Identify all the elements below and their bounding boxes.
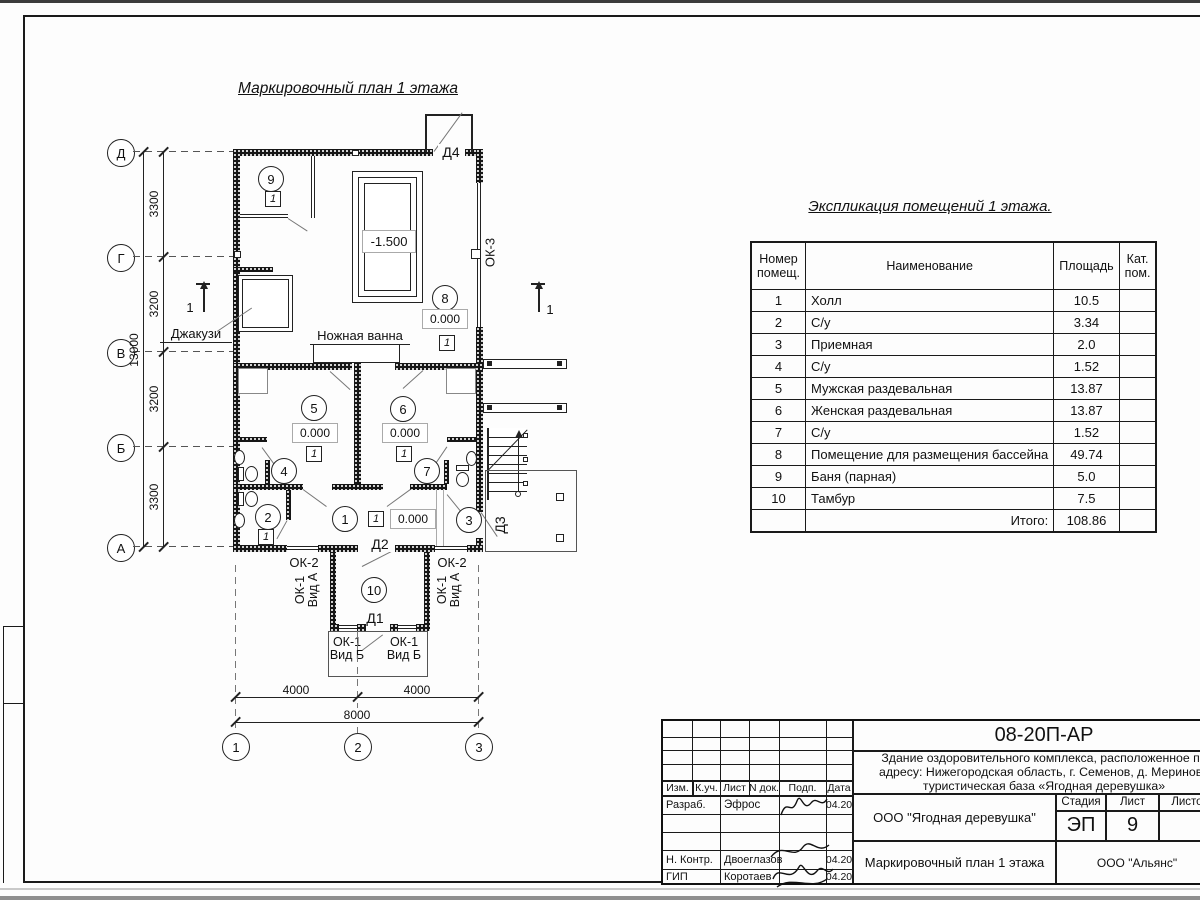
door-label-d4: Д4	[438, 144, 464, 160]
dim-value: 4000	[397, 683, 437, 697]
tb-plan-name: Маркировочный план 1 этажа	[854, 842, 1055, 883]
wall	[233, 484, 303, 490]
dim-value: 4000	[276, 683, 316, 697]
room-circle-6: 6	[390, 396, 416, 422]
section-mark-bar	[531, 283, 545, 285]
sink	[234, 450, 245, 465]
cell-num: 5	[751, 378, 806, 400]
cell-area: 5.0	[1054, 466, 1119, 488]
tb-role-razrab: Разраб.	[666, 795, 720, 814]
stairs-arrow-head	[515, 430, 523, 438]
toilet-tank	[238, 492, 244, 506]
wall	[233, 267, 273, 272]
cell-cat	[1119, 466, 1156, 488]
axis-label: А	[117, 541, 126, 556]
tb-doc-number: 08-20П-АР	[854, 721, 1200, 750]
cell-num: 7	[751, 422, 806, 444]
tb-col-kuch: К.уч.	[693, 780, 720, 795]
axis-label: Г	[117, 251, 124, 266]
ramp-rail	[483, 403, 567, 413]
col-header-num: Номер помещ.	[751, 242, 806, 290]
explication-table: Номер помещ. Наименование Площадь Кат. п…	[750, 241, 1157, 533]
jacuzzi-inner	[242, 279, 289, 328]
counter-line	[436, 490, 437, 546]
signature-razrab	[775, 789, 831, 823]
axis-line	[133, 151, 233, 152]
toilet-bowl	[245, 491, 258, 507]
signature-nkontr-gip	[763, 839, 841, 891]
room-number: 10	[367, 583, 381, 598]
door-label-d1: Д1	[361, 610, 389, 626]
room-number: 2	[264, 510, 271, 525]
window-mullion	[471, 249, 481, 259]
door-label-d2: Д2	[366, 536, 394, 552]
table-row: 1Холл10.5	[751, 290, 1156, 312]
cell-num: 4	[751, 356, 806, 378]
total-value: 108.86	[1054, 510, 1119, 533]
sink	[234, 513, 245, 528]
room-circle-4: 4	[271, 458, 297, 484]
partition	[311, 156, 315, 218]
tb-role-nkontr: Н. Контр.	[666, 850, 720, 869]
tb-name-razrab: Эфрос	[724, 795, 779, 814]
frame-margin-divider	[3, 703, 23, 704]
wall	[233, 545, 287, 552]
cell-area: 1.52	[1054, 422, 1119, 444]
room-circle-7: 7	[414, 458, 440, 484]
tb-description: Здание оздоровительного комплекса, распо…	[854, 751, 1200, 793]
col-header-area: Площадь	[1054, 242, 1119, 290]
foot-bath-label: Ножная ванна	[310, 328, 410, 345]
wall	[476, 327, 483, 512]
wall	[447, 437, 476, 442]
room-number: 6	[399, 402, 406, 417]
cell-cat	[1119, 356, 1156, 378]
rail-post	[487, 361, 492, 366]
cell-name: С/у	[806, 356, 1054, 378]
toilet-tank	[456, 465, 469, 471]
sheet-bottom-edge-dark	[0, 896, 1200, 900]
table-header-row: Номер помещ. Наименование Площадь Кат. п…	[751, 242, 1156, 290]
wall	[395, 545, 435, 552]
drawing-sheet: Маркировочный план 1 этажа Д Г В Б А 330…	[0, 0, 1200, 900]
sink	[466, 451, 477, 466]
dim-value-total: 8000	[336, 708, 378, 722]
cell-empty	[1119, 510, 1156, 533]
cell-cat	[1119, 312, 1156, 334]
cell-area: 10.5	[1054, 290, 1119, 312]
room-number: 7	[423, 464, 430, 479]
wall-tambour	[390, 624, 398, 631]
rail-post	[557, 361, 562, 366]
ramp-rail	[483, 359, 567, 369]
room-circle-9: 9	[258, 166, 284, 192]
tb-line	[663, 832, 852, 833]
window-label-ok1-vid-a: ОК-1 Вид А	[436, 567, 462, 613]
room-number: 4	[280, 464, 287, 479]
axis-line	[133, 446, 233, 447]
column-axis-line	[235, 565, 236, 733]
tb-col-izm: Изм.	[663, 780, 692, 795]
dim-value: 3300	[147, 184, 161, 224]
rail-post	[487, 405, 492, 410]
cell-name: Баня (парная)	[806, 466, 1054, 488]
wall	[444, 460, 449, 484]
wall-tambour	[416, 624, 430, 631]
cell-name: Приемная	[806, 334, 1054, 356]
window-ok2	[435, 546, 467, 550]
tb-sheet-label: Лист	[1107, 793, 1158, 810]
wall	[265, 460, 270, 484]
window-label-ok1-vid-b: ОК-1 Вид Б	[381, 636, 427, 662]
dim-value: 3200	[147, 284, 161, 324]
tb-stage-label: Стадия	[1057, 793, 1105, 810]
wall	[233, 437, 267, 442]
wall	[286, 490, 291, 520]
axis-line	[133, 351, 233, 352]
cell-area: 49.74	[1054, 444, 1119, 466]
total-label: Итого:	[806, 510, 1054, 533]
cell-cat	[1119, 334, 1156, 356]
cell-area: 1.52	[1054, 356, 1119, 378]
level-marker: 0.000	[422, 309, 468, 329]
axis-col-2: 2	[344, 733, 372, 761]
wall-tambour	[330, 624, 339, 631]
room-circle-5: 5	[301, 395, 327, 421]
cell-num: 9	[751, 466, 806, 488]
tb-sheet-value: 9	[1107, 811, 1158, 840]
cell-cat	[1119, 422, 1156, 444]
table-row: 2С/у3.34	[751, 312, 1156, 334]
axis-col-1: 1	[222, 733, 250, 761]
level-marker: 0.000	[390, 509, 436, 529]
rail-post	[557, 405, 562, 410]
window-ok1	[398, 625, 416, 629]
section-number: 1	[544, 302, 556, 317]
plan-title: Маркировочный план 1 этажа	[198, 80, 498, 98]
table-row: 10Тамбур7.5	[751, 488, 1156, 510]
cell-area: 3.34	[1054, 312, 1119, 334]
wall-fixture	[352, 150, 359, 156]
floor-type-marker: 1	[396, 446, 412, 462]
frame-margin-line	[3, 626, 4, 883]
toilet-tank	[238, 467, 244, 481]
title-block: Изм. К.уч. Лист N док. Подп. Дата Разраб…	[661, 719, 1200, 885]
section-mark-line	[203, 286, 205, 312]
room-number: 5	[310, 401, 317, 416]
axis-line	[133, 256, 233, 257]
axis-label: Б	[117, 441, 126, 456]
room-circle-1: 1	[332, 506, 358, 532]
cell-cat	[1119, 444, 1156, 466]
axis-row-G: Г	[107, 244, 135, 272]
shower-tray	[446, 368, 476, 394]
cell-area: 13.87	[1054, 400, 1119, 422]
table-row: 7С/у1.52	[751, 422, 1156, 444]
tb-company: ООО "Ягодная деревушка"	[854, 795, 1055, 840]
toilet-bowl	[245, 466, 258, 482]
dim-line-bottom-total	[235, 722, 478, 723]
dim-value-total: 13000	[127, 322, 141, 378]
cell-cat	[1119, 488, 1156, 510]
porch-post	[556, 493, 564, 501]
floor-type-marker: 1	[439, 335, 455, 351]
tb-role-gip: ГИП	[666, 869, 720, 885]
cell-num: 8	[751, 444, 806, 466]
tb-line	[720, 721, 721, 883]
porch-post	[556, 534, 564, 542]
window-ok2	[287, 546, 318, 550]
tb-line	[663, 764, 852, 765]
wall	[467, 545, 483, 552]
tb-col-list: Лист	[720, 780, 749, 795]
level-marker: 0.000	[292, 423, 338, 443]
cell-area: 2.0	[1054, 334, 1119, 356]
col-header-cat: Кат. пом.	[1119, 242, 1156, 290]
window-label-ok1-vid-a: ОК-1 Вид А	[294, 567, 320, 613]
wall	[332, 484, 383, 490]
wall	[318, 545, 358, 552]
room-number: 8	[441, 291, 448, 306]
sheet-top-edge	[0, 0, 1200, 3]
toilet-bowl	[456, 472, 469, 487]
sheet-bottom-edge-light	[0, 888, 1200, 890]
counter-line	[443, 490, 444, 546]
pool-level-marker: -1.500	[362, 230, 416, 253]
floor-type-marker: 1	[368, 511, 384, 527]
room-circle-3: 3	[456, 507, 482, 533]
table-row: 8Помещение для размещения бассейна49.74	[751, 444, 1156, 466]
level-marker: 0.000	[382, 423, 428, 443]
door-label-d3: Д3	[492, 510, 508, 540]
floor-type-marker: 1	[265, 191, 281, 207]
wall	[476, 149, 483, 183]
cell-num: 6	[751, 400, 806, 422]
explication-title: Экспликация помещений 1 этажа.	[790, 198, 1070, 215]
dim-value: 3300	[147, 477, 161, 517]
cell-num: 10	[751, 488, 806, 510]
axis-label: Д	[117, 146, 126, 161]
partition	[240, 214, 288, 218]
window-ok1	[339, 625, 357, 629]
shower-tray	[238, 368, 268, 394]
table-row: 5Мужская раздевальная13.87	[751, 378, 1156, 400]
cell-name: Мужская раздевальная	[806, 378, 1054, 400]
table-row: 9Баня (парная)5.0	[751, 466, 1156, 488]
window-label-ok1-vid-b: ОК-1 Вид Б	[324, 636, 370, 662]
floor-type-marker: 1	[306, 446, 322, 462]
railing-post	[523, 457, 528, 462]
cell-cat	[1119, 378, 1156, 400]
tb-sheets-label: Листов	[1160, 793, 1200, 810]
room-circle-2: 2	[255, 504, 281, 530]
cell-num: 3	[751, 334, 806, 356]
wall	[354, 363, 361, 490]
dim-line-total-left	[143, 152, 144, 547]
axis-col-3: 3	[465, 733, 493, 761]
floor-type-marker: 1	[258, 529, 274, 545]
wall	[233, 149, 433, 156]
wall-tambour	[330, 552, 336, 627]
axis-row-B: Б	[107, 434, 135, 462]
cell-name: Тамбур	[806, 488, 1054, 510]
cell-empty	[751, 510, 806, 533]
axis-label: В	[117, 346, 126, 361]
cell-cat	[1119, 400, 1156, 422]
axis-label: 3	[475, 740, 482, 755]
table-row: 4С/у1.52	[751, 356, 1156, 378]
section-mark-line	[538, 286, 540, 312]
railing-post	[523, 433, 528, 438]
cell-cat	[1119, 290, 1156, 312]
cell-name: Женская раздевальная	[806, 400, 1054, 422]
cell-name: Холл	[806, 290, 1054, 312]
tb-line	[663, 737, 852, 738]
tb-line	[663, 750, 852, 751]
table-total-row: Итого:108.86	[751, 510, 1156, 533]
axis-row-A: А	[107, 534, 135, 562]
axis-label: 2	[354, 740, 361, 755]
cell-area: 7.5	[1054, 488, 1119, 510]
table-row: 3Приемная2.0	[751, 334, 1156, 356]
table-row: 6Женская раздевальная13.87	[751, 400, 1156, 422]
dim-value: 3200	[147, 379, 161, 419]
room-number: 9	[267, 172, 274, 187]
room-number: 3	[465, 513, 472, 528]
cell-num: 2	[751, 312, 806, 334]
room-number: 1	[341, 512, 348, 527]
wall	[410, 484, 447, 490]
cell-name: С/у	[806, 422, 1054, 444]
cell-name: Помещение для размещения бассейна	[806, 444, 1054, 466]
column-axis-line	[478, 565, 479, 733]
cell-area: 13.87	[1054, 378, 1119, 400]
tb-contractor: ООО "Альянс"	[1057, 842, 1200, 883]
section-mark-bar	[196, 283, 210, 285]
window-label-ok3: ОК-3	[483, 228, 498, 278]
axis-row-D: Д	[107, 139, 135, 167]
axis-line	[133, 546, 233, 547]
cell-name: С/у	[806, 312, 1054, 334]
frame-margin-divider	[3, 626, 23, 627]
col-header-name: Наименование	[806, 242, 1054, 290]
cell-num: 1	[751, 290, 806, 312]
section-number: 1	[184, 300, 196, 315]
room-circle-8: 8	[432, 285, 458, 311]
wall-fixture	[234, 251, 241, 258]
tb-stage-value: ЭП	[1057, 811, 1105, 840]
room-circle-10: 10	[361, 577, 387, 603]
axis-label: 1	[232, 740, 239, 755]
